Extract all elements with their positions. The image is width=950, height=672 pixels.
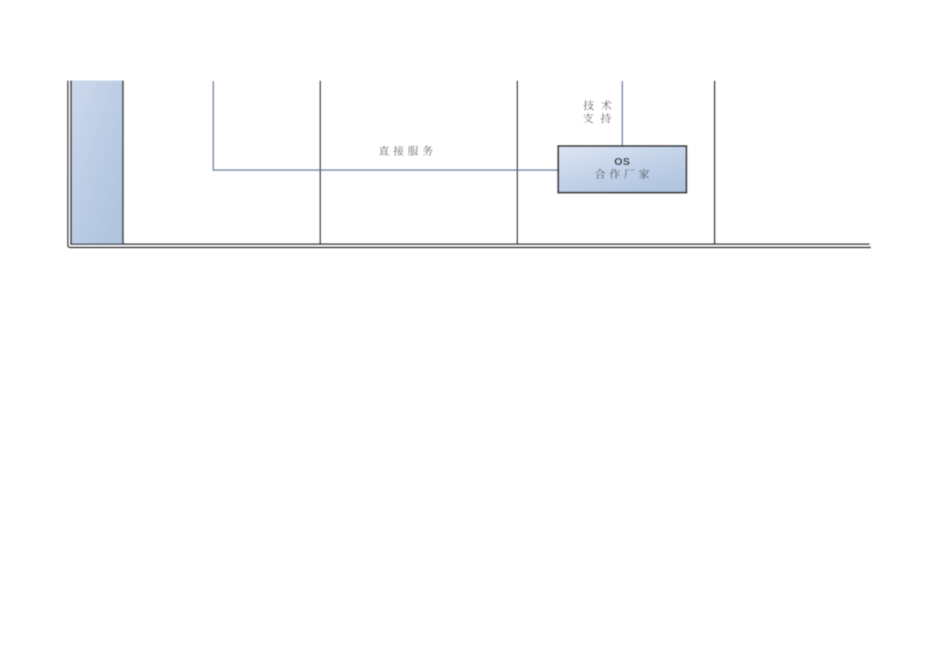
svg-text:OS: OS	[614, 156, 630, 168]
